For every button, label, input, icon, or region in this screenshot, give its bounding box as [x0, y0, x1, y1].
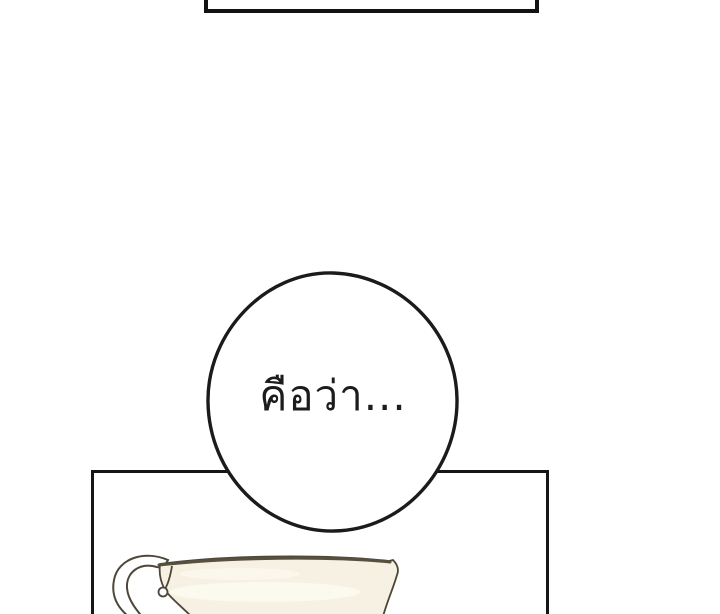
speech-bubble-text: คือว่า... — [213, 348, 453, 444]
comic-page: คือว่า... — [0, 0, 720, 614]
panel-bottom — [91, 470, 549, 614]
panel-top-partial — [204, 0, 539, 13]
